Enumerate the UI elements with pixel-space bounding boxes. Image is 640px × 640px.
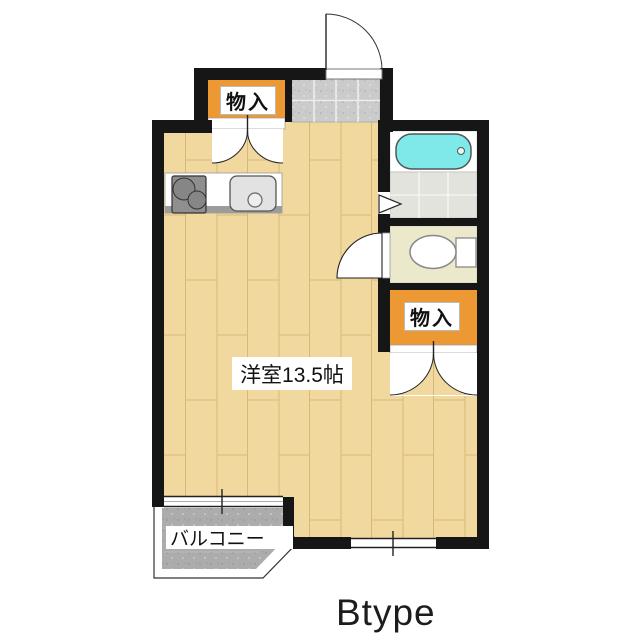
- storage-right-label: 物入: [404, 302, 460, 331]
- main-room-label: 洋室13.5帖: [232, 357, 352, 390]
- bathroom: [390, 131, 477, 218]
- entrance-door-sill: [326, 69, 382, 79]
- stove-burner: [188, 191, 206, 209]
- toilet-tank: [456, 238, 476, 267]
- toilet-room: [390, 226, 477, 283]
- plan-type-title: Btype: [336, 592, 436, 634]
- genkan-tiles: [292, 79, 380, 122]
- storage-top-label: 物入: [220, 86, 276, 115]
- entrance-door-swing-arc: [326, 14, 382, 70]
- kitchen: [165, 173, 282, 213]
- sink-drain: [248, 193, 262, 207]
- floorplan-drawing: [0, 0, 640, 640]
- floorplan-page: 物入 物入 洋室13.5帖 バルコニー Btype: [0, 0, 640, 640]
- bathtub-drain: [458, 148, 465, 155]
- toilet-bowl: [410, 236, 456, 269]
- balcony-label: バルコニー: [166, 526, 293, 549]
- entrance-door: [326, 14, 382, 79]
